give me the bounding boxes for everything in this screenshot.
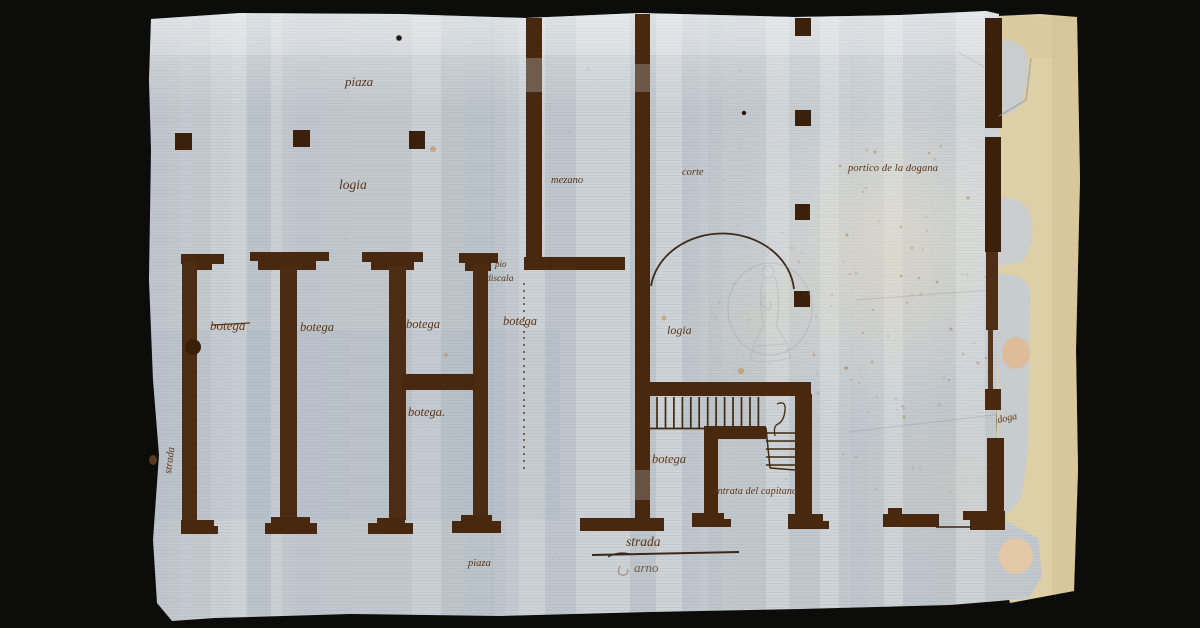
svg-text:logia: logia [339, 177, 367, 192]
svg-text:portico de la dogana: portico de la dogana [847, 163, 938, 174]
svg-text:logia: logia [667, 323, 692, 337]
svg-text:mezano: mezano [551, 175, 583, 186]
svg-text:pio: pio [494, 259, 507, 269]
svg-text:botega: botega [503, 314, 537, 328]
svg-text:piaza: piaza [344, 74, 374, 89]
svg-text:corte: corte [682, 167, 704, 178]
svg-text:strada: strada [626, 534, 661, 549]
svg-text:botega: botega [406, 317, 440, 331]
svg-text:arno: arno [634, 560, 659, 575]
svg-text:discala: discala [486, 274, 514, 284]
svg-text:botega: botega [652, 452, 686, 466]
svg-text:entrata del capitano: entrata del capitano [713, 486, 797, 497]
svg-text:botega: botega [210, 318, 246, 333]
svg-text:botega: botega [300, 320, 334, 334]
svg-text:botega.: botega. [408, 405, 445, 419]
svg-text:piaza: piaza [467, 558, 491, 569]
